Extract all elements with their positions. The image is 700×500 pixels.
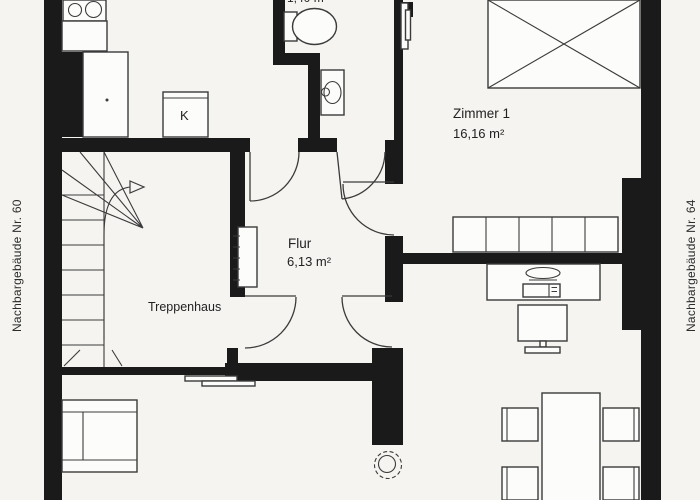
wall-hall-east-mid — [385, 236, 403, 302]
plant-symbol — [375, 452, 402, 479]
dining-furniture — [375, 393, 640, 500]
doors — [245, 152, 394, 348]
neighbor-building-right-label: Nachbargebäude Nr. 64 — [684, 199, 698, 332]
bed-symbol — [488, 0, 640, 88]
chair-symbol — [603, 467, 639, 500]
wall-wc-west-lower — [308, 65, 320, 152]
door-room1 — [343, 182, 394, 235]
wall-wc-east-lower — [385, 140, 403, 184]
wall-wc-west-upper — [273, 0, 285, 53]
stairs-direction-arrow — [130, 181, 144, 193]
workspace-furniture — [487, 264, 600, 353]
wall-right-outer — [641, 0, 661, 500]
keyboard-symbol — [523, 284, 560, 297]
wall-bottom-vertical — [372, 348, 403, 445]
wardrobe-symbol — [453, 217, 618, 252]
room1-name-label: Zimmer 1 — [453, 106, 510, 121]
wall-wc-west-jog — [273, 53, 320, 65]
wall-left-outer — [44, 0, 62, 500]
floor-plan-drawing — [0, 0, 700, 500]
floor-plan-page: 1,40 m² Zimmer 1 16,16 m² Flur 6,13 m² T… — [0, 0, 700, 500]
hall-area-label: 6,13 m² — [287, 254, 331, 269]
washbasin-symbol — [321, 70, 344, 115]
tall-cabinet-symbol — [83, 52, 128, 137]
kitchen-counter-symbol — [62, 21, 107, 51]
door-hall-south — [342, 296, 392, 347]
wall-stairs-south — [62, 367, 225, 375]
chair-symbol — [603, 408, 639, 441]
door-staircase — [245, 296, 296, 348]
wall-room1-south — [398, 253, 641, 264]
staircase-label: Treppenhaus — [148, 300, 221, 314]
cabinet-handle — [106, 99, 109, 102]
fridge-label: K — [180, 108, 189, 123]
hall-name-label: Flur — [288, 236, 311, 251]
radiator-symbol — [401, 3, 411, 49]
staircase-symbol — [62, 152, 144, 367]
stove-symbol — [63, 0, 106, 21]
chair-symbol — [502, 467, 538, 500]
toilet-symbol — [284, 9, 337, 45]
chimney-block — [62, 52, 83, 137]
door-hall-northwest — [250, 152, 299, 201]
wc-area-label: 1,40 m² — [287, 0, 328, 5]
wall-kitchen-south — [62, 138, 250, 152]
dining-table-symbol — [542, 393, 600, 500]
room1-area-label: 16,16 m² — [453, 126, 504, 141]
chair-symbol — [502, 408, 538, 441]
monitor-symbol — [518, 305, 567, 353]
neighbor-building-left-label: Nachbargebäude Nr. 60 — [10, 199, 24, 332]
sofa-bed-symbol — [62, 400, 137, 472]
